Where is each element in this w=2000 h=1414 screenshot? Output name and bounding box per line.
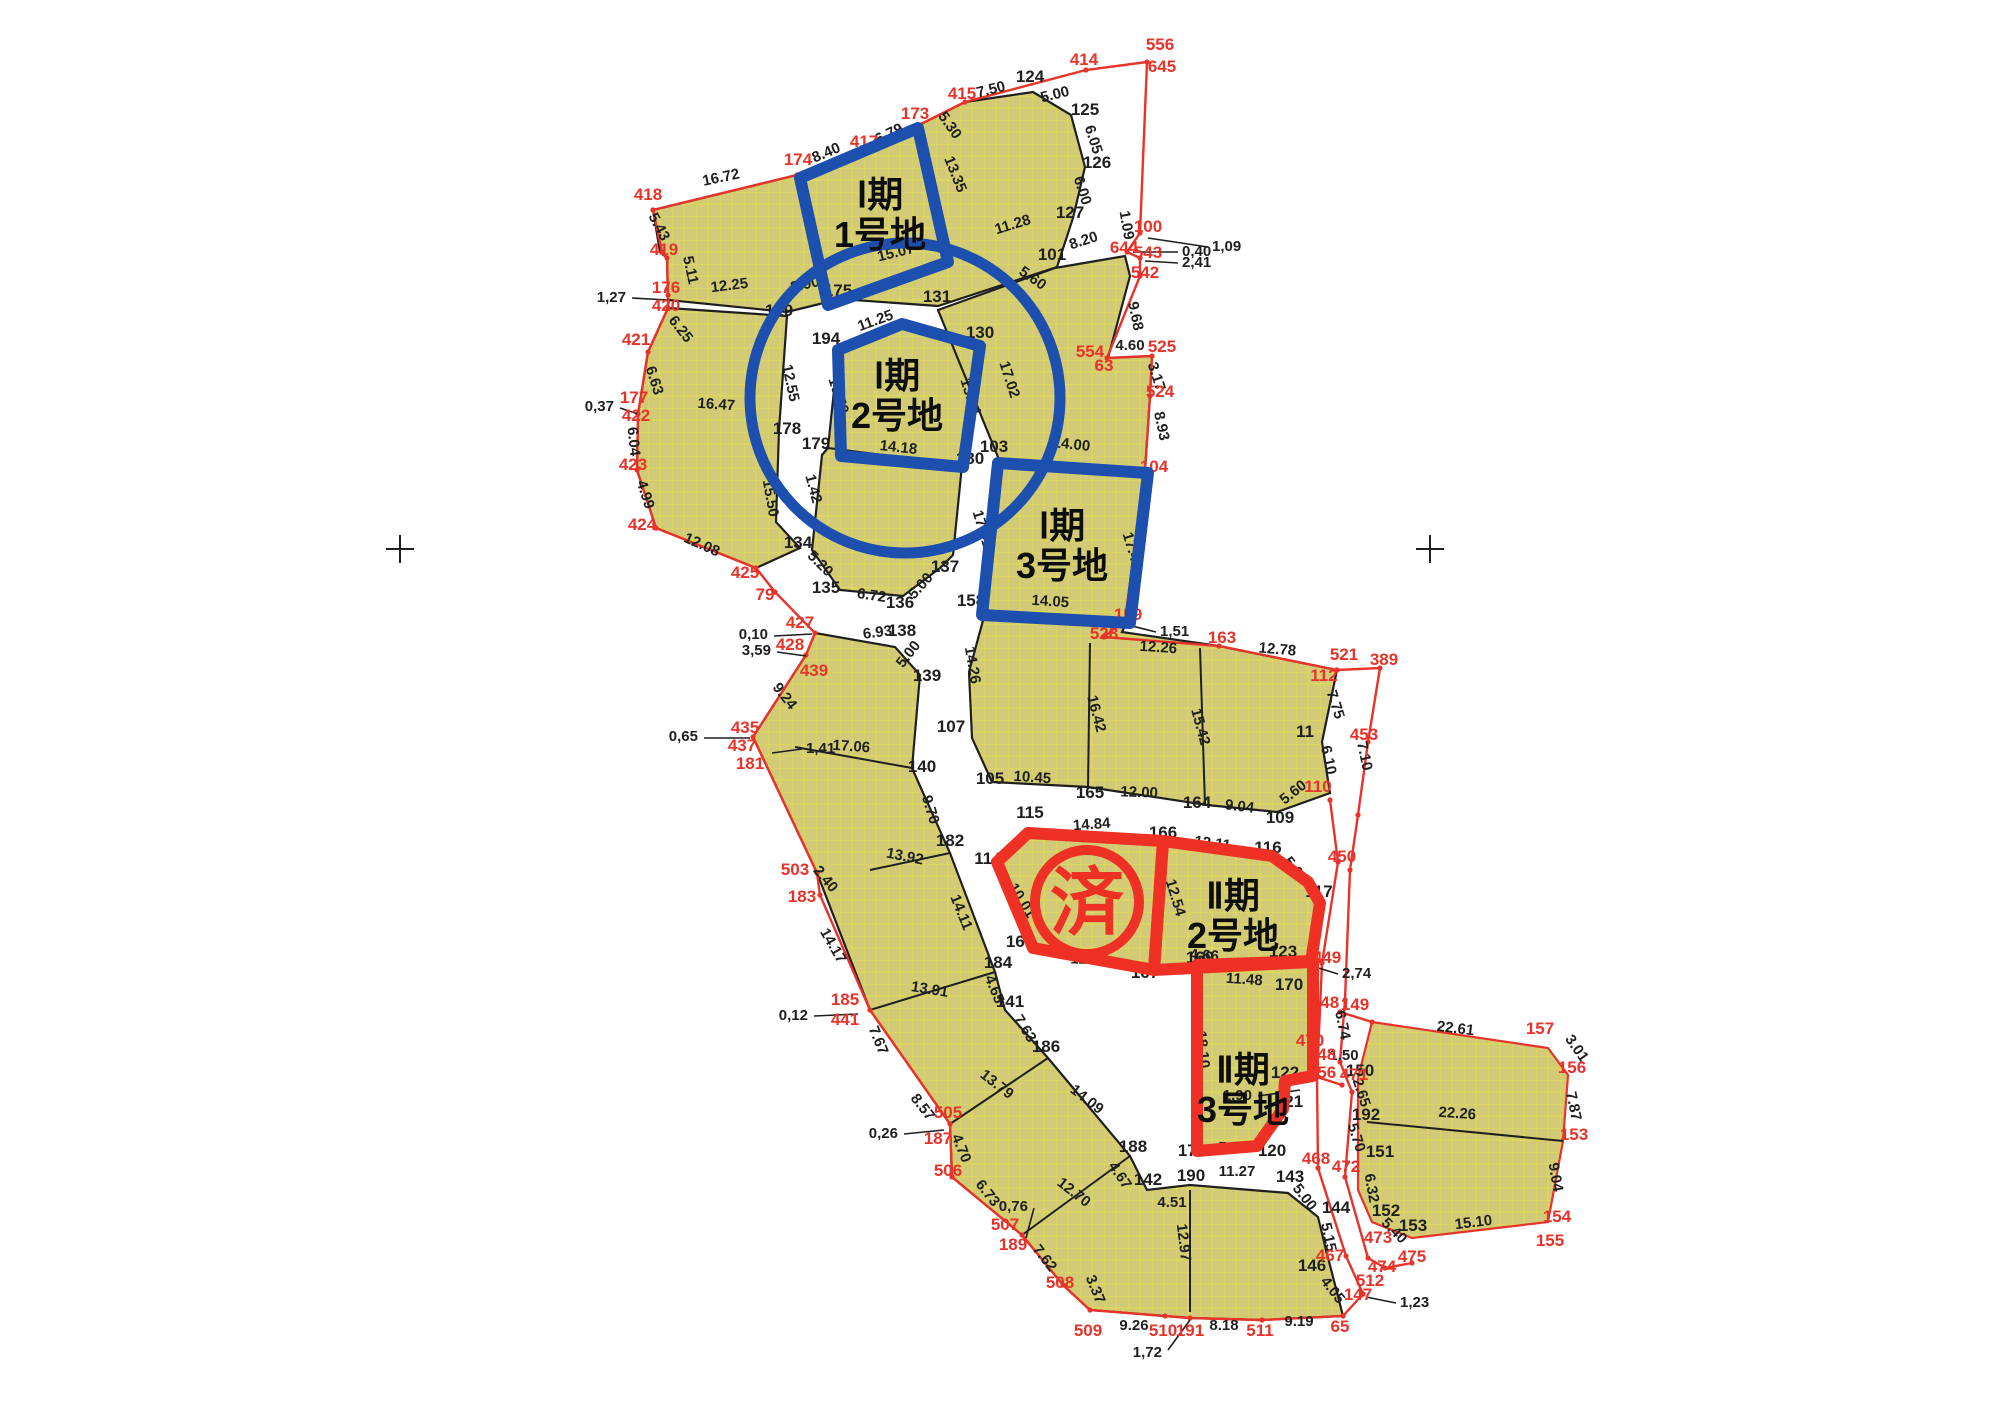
survey-point-dot bbox=[1162, 1313, 1167, 1318]
survey-point-number-label: 506 bbox=[934, 1161, 962, 1180]
phase-label-line2: 3号地 bbox=[1197, 1089, 1289, 1130]
survey-point-number-label: 153 bbox=[1560, 1125, 1588, 1144]
lot-number-label: 131 bbox=[923, 287, 951, 306]
survey-point-number-label: 189 bbox=[999, 1235, 1027, 1254]
survey-point-number-label: 525 bbox=[1148, 337, 1176, 356]
survey-point-number-label: 147 bbox=[1344, 1285, 1372, 1304]
survey-point-number-label: 508 bbox=[1046, 1273, 1074, 1292]
dimension-label: 5.00 bbox=[1039, 83, 1071, 107]
survey-point-number-label: 156 bbox=[1558, 1058, 1586, 1077]
callout-value: 2,74 bbox=[1342, 965, 1372, 982]
lot-number-label: 142 bbox=[1134, 1170, 1162, 1189]
survey-point-number-label: 157 bbox=[1526, 1019, 1554, 1038]
survey-point-dot bbox=[1369, 1019, 1374, 1024]
lot-number-label: 153 bbox=[1399, 1216, 1427, 1235]
survey-point-number-label: 423 bbox=[619, 455, 647, 474]
callout-value: 2,41 bbox=[1182, 254, 1211, 271]
lot-number-label: 134 bbox=[784, 533, 813, 552]
survey-point-number-label: 453 bbox=[1350, 725, 1378, 744]
survey-point-number-label: 183 bbox=[788, 887, 816, 906]
survey-point-dot bbox=[867, 1007, 872, 1012]
survey-point-number-label: 110 bbox=[1304, 777, 1331, 796]
lot-number-label: 139 bbox=[913, 666, 941, 685]
lot-number-label: 179 bbox=[802, 434, 830, 453]
survey-point-number-label: 422 bbox=[622, 406, 650, 425]
lot-number-label: 152 bbox=[1372, 1201, 1400, 1220]
survey-point-number-label: 420 bbox=[652, 296, 680, 315]
lot-number-label: 141 bbox=[996, 992, 1024, 1011]
survey-point-number-label: 424 bbox=[628, 515, 657, 534]
survey-point-number-label: 155 bbox=[1536, 1231, 1564, 1250]
lot-number-label: 109 bbox=[1266, 808, 1294, 827]
survey-point-number-label: 511 bbox=[1246, 1321, 1273, 1340]
survey-point-number-label: 510 bbox=[1149, 1321, 1177, 1340]
lot-number-label: 151 bbox=[1366, 1142, 1394, 1161]
survey-point-number-label: 79 bbox=[756, 585, 775, 604]
callout-value: 0,12 bbox=[779, 1007, 808, 1024]
dimension-label: 9.26 bbox=[1119, 1317, 1148, 1334]
survey-point-number-label: 174 bbox=[784, 150, 813, 169]
dimension-label: 9.19 bbox=[1284, 1313, 1313, 1330]
survey-point-number-label: 181 bbox=[736, 754, 764, 773]
survey-point-number-label: 414 bbox=[1070, 50, 1099, 69]
survey-point-number-label: 185 bbox=[831, 990, 859, 1009]
survey-point-number-label: 176 bbox=[652, 278, 680, 297]
lot-number-label: 11 bbox=[1296, 722, 1314, 741]
survey-point-number-label: 507 bbox=[991, 1215, 1019, 1234]
lot-number-label: 138 bbox=[888, 621, 916, 640]
callout-value: 0,26 bbox=[869, 1125, 898, 1142]
dimension-label: 8.93 bbox=[1150, 410, 1173, 442]
lot-number-label: 182 bbox=[936, 831, 964, 850]
dimension-label: 8.18 bbox=[1209, 1317, 1238, 1334]
lot-number-label: 190 bbox=[1177, 1166, 1205, 1185]
callout-value: 1,41 bbox=[806, 740, 835, 757]
survey-point-number-label: 428 bbox=[776, 635, 804, 654]
lot-number-label: 165 bbox=[1076, 783, 1104, 802]
survey-point-number-label: 177 bbox=[620, 388, 648, 407]
dimension-label: 22.26 bbox=[1438, 1104, 1477, 1124]
survey-point-number-label: 415 bbox=[948, 84, 976, 103]
site-plan-svg: 1,270,370,103,590,651,411,090,402,411,51… bbox=[0, 0, 2000, 1414]
survey-point-number-label: 65 bbox=[1331, 1317, 1350, 1336]
dimension-label: 12.00 bbox=[1120, 783, 1158, 801]
dimension-label: 8.20 bbox=[1067, 228, 1100, 253]
phase-label-line1: Ⅱ期 bbox=[1206, 875, 1260, 916]
dimension-label: 14.05 bbox=[1031, 592, 1070, 612]
callout-value: 0,10 bbox=[739, 626, 768, 643]
dimension-label: 4.60 bbox=[1115, 337, 1144, 354]
survey-point-dot bbox=[1347, 867, 1352, 872]
survey-point-dot bbox=[947, 1121, 952, 1126]
survey-point-number-label: 63 bbox=[1095, 356, 1114, 375]
phase-label-line2: 1号地 bbox=[834, 214, 926, 255]
survey-point-number-label: 471 bbox=[1340, 1065, 1368, 1084]
survey-point-number-label: 425 bbox=[731, 563, 759, 582]
survey-point-number-label: 112 bbox=[1310, 666, 1337, 685]
dimension-label: 6.72 bbox=[856, 585, 887, 606]
survey-point-number-label: 473 bbox=[1364, 1228, 1392, 1247]
survey-point-dot bbox=[1087, 1307, 1092, 1312]
callout-value: 1,23 bbox=[1400, 1294, 1429, 1311]
lot-number-label: 126 bbox=[1083, 153, 1111, 172]
callout-value: 3,59 bbox=[742, 642, 771, 659]
callout-value: 1,72 bbox=[1133, 1344, 1162, 1361]
survey-point-number-label: 149 bbox=[1341, 995, 1369, 1014]
survey-point-number-label: 509 bbox=[1074, 1321, 1102, 1340]
survey-point-number-label: 427 bbox=[786, 613, 814, 632]
survey-point-number-label: 435 bbox=[731, 718, 759, 737]
dimension-label: 16.72 bbox=[701, 165, 741, 189]
lot-number-label: 136 bbox=[886, 593, 914, 612]
lot-number-label: 178 bbox=[773, 419, 801, 438]
callout-value: 0,37 bbox=[585, 398, 614, 415]
survey-point-number-label: 154 bbox=[1543, 1207, 1572, 1226]
survey-point-number-label: 475 bbox=[1398, 1247, 1426, 1266]
survey-point-number-label: 524 bbox=[1146, 382, 1175, 401]
dimension-label: 16.47 bbox=[697, 395, 736, 415]
survey-point-number-label: 419 bbox=[650, 240, 678, 259]
lot-number-label: 192 bbox=[1352, 1105, 1380, 1124]
survey-point-number-label: 505 bbox=[934, 1103, 962, 1122]
phase-label-line1: Ⅱ期 bbox=[1216, 1049, 1270, 1090]
land-subdivision-map: 1,270,370,103,590,651,411,090,402,411,51… bbox=[0, 0, 2000, 1414]
dimension-label: 7.10 bbox=[1353, 740, 1376, 772]
callout-value: 1,27 bbox=[597, 289, 626, 306]
dimension-label: 9.68 bbox=[1124, 300, 1147, 332]
survey-point-number-label: 441 bbox=[831, 1010, 859, 1029]
lot-number-label: 101 bbox=[1038, 245, 1066, 264]
survey-point-number-label: 421 bbox=[622, 330, 650, 349]
survey-point-number-label: 450 bbox=[1328, 847, 1356, 866]
phase-label-line1: Ⅰ期 bbox=[1039, 505, 1086, 546]
phase-label-line2: 3号地 bbox=[1016, 545, 1108, 586]
dimension-label: 11.48 bbox=[1225, 970, 1263, 990]
lot-number-label: 124 bbox=[1016, 67, 1045, 86]
survey-point-number-label: 467 bbox=[1316, 1246, 1344, 1265]
survey-point-dot bbox=[645, 349, 650, 354]
dimension-label: 6.05 bbox=[1081, 123, 1106, 156]
lot-number-label: 164 bbox=[1183, 793, 1212, 812]
survey-point-number-label: 437 bbox=[728, 736, 756, 755]
survey-point-dot bbox=[1355, 812, 1360, 817]
dimension-label: 4.51 bbox=[1157, 1194, 1186, 1211]
dimension-label: 11.27 bbox=[1219, 1163, 1256, 1180]
phase-label-line2: 2号地 bbox=[851, 395, 943, 436]
lot-number-label: 115 bbox=[1016, 803, 1043, 822]
survey-point-number-label: 556 bbox=[1146, 35, 1174, 54]
lot-number-label: 186 bbox=[1032, 1037, 1060, 1056]
lot-number-label: 103 bbox=[980, 437, 1008, 456]
survey-point-number-label: 472 bbox=[1332, 1157, 1360, 1176]
phase-label-line1: Ⅰ期 bbox=[857, 174, 904, 215]
lot-number-label: 127 bbox=[1056, 203, 1084, 222]
survey-point-number-label: 100 bbox=[1134, 217, 1162, 236]
lot-number-label: 170 bbox=[1275, 975, 1303, 994]
dimension-label: 9.04 bbox=[1224, 796, 1256, 817]
phase-label-line2: 2号地 bbox=[1187, 915, 1279, 956]
survey-point-dot bbox=[817, 892, 822, 897]
survey-point-number-label: 389 bbox=[1370, 650, 1398, 669]
survey-point-number-label: 468 bbox=[1302, 1149, 1330, 1168]
callout-value: 1,51 bbox=[1160, 623, 1189, 640]
dimension-label: 17.06 bbox=[832, 737, 871, 757]
lot-number-label: 143 bbox=[1276, 1167, 1304, 1186]
callout-value: 0,65 bbox=[669, 728, 698, 745]
lot-number-label: 107 bbox=[937, 717, 965, 736]
survey-point-number-label: 503 bbox=[781, 860, 809, 879]
callout-value: 0,76 bbox=[999, 1198, 1028, 1215]
lot-number-label: 188 bbox=[1119, 1137, 1147, 1156]
lot-number-label: 137 bbox=[931, 557, 959, 576]
survey-point-number-label: 187 bbox=[924, 1129, 952, 1148]
dimension-label: 12.26 bbox=[1139, 638, 1178, 658]
sold-stamp-text: 済 bbox=[1050, 861, 1125, 944]
lot-number-label: 105 bbox=[976, 769, 1004, 788]
survey-point-number-label: 521 bbox=[1330, 645, 1358, 664]
survey-point-number-label: 439 bbox=[800, 661, 828, 680]
dimension-label: 6.04 bbox=[623, 426, 643, 457]
survey-point-dot bbox=[1327, 797, 1332, 802]
lot-number-label: 140 bbox=[908, 757, 936, 776]
survey-point-number-label: 645 bbox=[1148, 57, 1176, 76]
lot-number-label: 135 bbox=[812, 578, 840, 597]
survey-point-number-label: 418 bbox=[634, 185, 662, 204]
survey-point-number-label: 173 bbox=[901, 104, 929, 123]
lot-number-label: 125 bbox=[1071, 100, 1099, 119]
survey-point-dot bbox=[1187, 1315, 1192, 1320]
callout-value: 1,09 bbox=[1212, 238, 1241, 255]
phase-label-line1: Ⅰ期 bbox=[874, 355, 921, 396]
dimension-label: 10.45 bbox=[1013, 768, 1052, 788]
survey-point-number-label: 191 bbox=[1176, 1321, 1204, 1340]
survey-point-number-label: 542 bbox=[1131, 263, 1159, 282]
lot-number-label: 144 bbox=[1322, 1198, 1351, 1217]
survey-point-number-label: 543 bbox=[1134, 243, 1162, 262]
lot-number-label: 184 bbox=[984, 953, 1013, 972]
dimension-label: 12.78 bbox=[1258, 639, 1297, 659]
survey-point-number-label: 163 bbox=[1208, 628, 1236, 647]
